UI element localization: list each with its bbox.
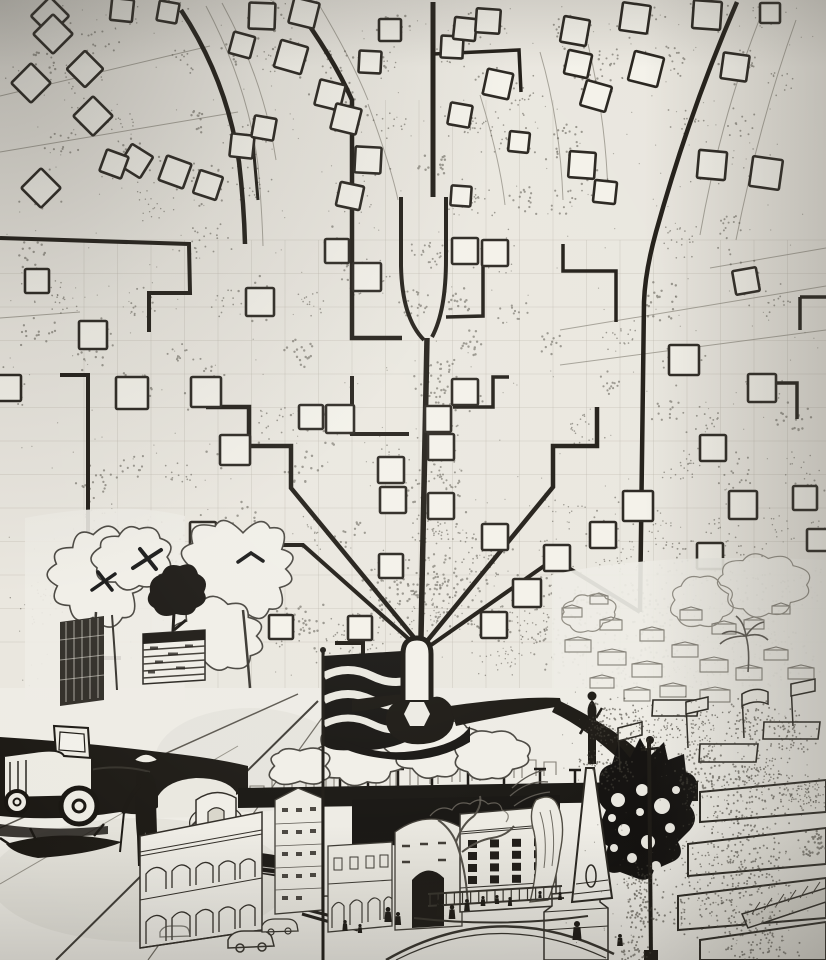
sketch-photo [0, 0, 826, 960]
photo-vignette [0, 0, 826, 960]
drawing-canvas [0, 0, 826, 960]
